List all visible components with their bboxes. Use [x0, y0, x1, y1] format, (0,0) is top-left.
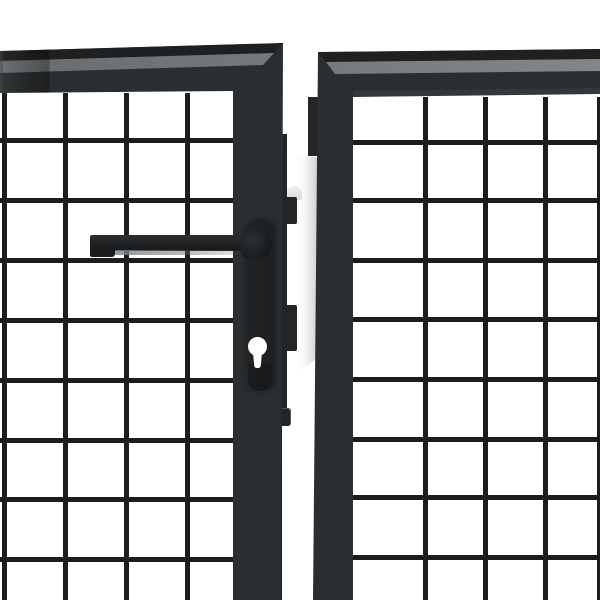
- mesh-wire-vertical: [483, 97, 488, 600]
- mesh-wire-vertical: [423, 97, 428, 600]
- mesh-wire-horizontal: [353, 555, 600, 560]
- frame-inner-edge: [0, 0, 233, 3]
- mesh-wire-horizontal: [0, 378, 233, 383]
- hinge-plate: [308, 97, 318, 156]
- mesh-wire-horizontal: [0, 198, 233, 203]
- mesh-wire-horizontal: [353, 317, 600, 322]
- handle-hub: [241, 229, 272, 259]
- lock-keep-upper: [284, 197, 297, 224]
- escutcheon-bottom: [247, 364, 272, 391]
- lever-handle-end: [90, 249, 115, 257]
- mesh-wire-horizontal: [353, 140, 600, 145]
- mesh-wire-horizontal: [0, 497, 233, 502]
- mesh-wire-vertical: [185, 93, 190, 600]
- mesh-wire-vertical: [543, 97, 548, 600]
- lever-handle-reflection: [115, 250, 243, 255]
- mesh-wire-horizontal: [0, 438, 233, 443]
- mesh-wire-horizontal: [353, 437, 600, 442]
- right-gate-leaf-mesh: [353, 97, 600, 600]
- mesh-wire-horizontal: [0, 318, 233, 323]
- frame-bottom-shadow: [0, 0, 40, 28]
- left-gate-leaf-mesh: [0, 93, 233, 600]
- mesh-wire-vertical: [124, 93, 129, 600]
- frame-bottom-shadow: [0, 0, 50, 28]
- mesh-wire-vertical: [2, 93, 7, 600]
- mesh-wire-horizontal: [0, 138, 233, 143]
- mesh-wire-horizontal: [0, 557, 233, 562]
- lock-keep-lower: [284, 305, 297, 351]
- mesh-wire-horizontal: [0, 258, 233, 263]
- mesh-wire-horizontal: [353, 495, 600, 500]
- mesh-wire-horizontal: [353, 377, 600, 382]
- mesh-wire-vertical: [63, 93, 68, 600]
- frame-miter-seam: [0, 0, 36, 47]
- gate-product-photo: [0, 0, 600, 600]
- mesh-wire-horizontal: [353, 198, 600, 203]
- frame-miter-seam: [0, 0, 48, 1]
- mesh-wire-horizontal: [353, 258, 600, 263]
